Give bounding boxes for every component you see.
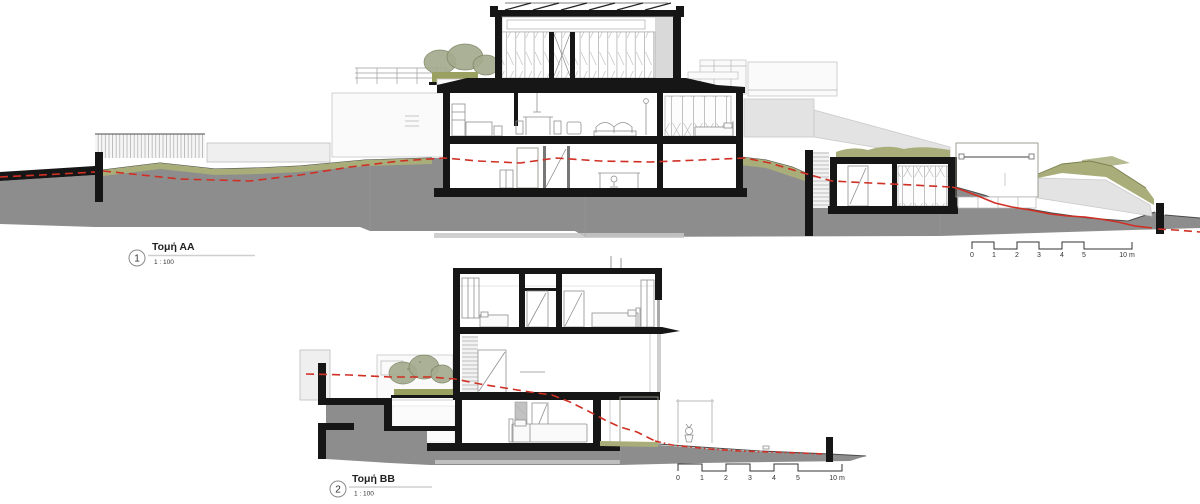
roof-slab <box>453 268 662 274</box>
roof-vents <box>611 256 621 268</box>
folding-shutters <box>502 32 655 78</box>
view-label-bb: 2 Τομή ΒΒ 1 : 100 <box>330 473 432 498</box>
section-bb-drawing: 0 1 2 3 4 5 10 m 2 Τομή ΒΒ 1 : 100 <box>300 256 866 498</box>
scalebar-tick: 3 <box>1037 252 1041 259</box>
house-bb <box>427 256 680 451</box>
view-number: 2 <box>335 485 341 496</box>
right-parapet <box>688 72 738 79</box>
upper-solid-panel <box>655 17 673 78</box>
pergola-posts <box>676 399 714 443</box>
scalebar-tick: 4 <box>1060 252 1064 259</box>
annex-volume <box>332 93 444 157</box>
view-title: Τομή ΑΑ <box>152 241 195 253</box>
view-title: Τομή ΒΒ <box>352 473 395 485</box>
scalebar-tick: 2 <box>1015 252 1019 259</box>
view-scale: 1 : 100 <box>154 259 174 266</box>
scalebar-tick: 1 <box>992 252 996 259</box>
green-roof <box>836 147 950 158</box>
clerestory-band <box>502 17 673 32</box>
scalebar-tick: 0 <box>676 475 680 482</box>
view-number: 1 <box>134 254 140 265</box>
terrace-canopy <box>748 62 837 96</box>
stone-wall-aa <box>956 143 1038 208</box>
upper-floor-slab <box>437 78 745 93</box>
base-slab-bb <box>427 443 620 451</box>
scalebar-tick: 1 <box>700 475 704 482</box>
background-volume <box>207 143 330 162</box>
scalebar-tick: 2 <box>724 475 728 482</box>
left-wall <box>453 268 460 400</box>
scalebar-tick: 5 <box>1082 252 1086 259</box>
sections-canvas: 0 1 2 3 4 5 10 m 1 Τομή ΑΑ 1 : 100 <box>0 0 1200 504</box>
scale-bar-bb: 0 1 2 3 4 5 10 m <box>676 464 845 482</box>
roof-slats <box>505 3 671 10</box>
scalebar-end-label: 10 m <box>829 475 845 482</box>
base-slab <box>434 188 747 197</box>
boundary-post-bb <box>826 437 833 462</box>
view-label-aa: 1 Τομή ΑΑ 1 : 100 <box>129 241 255 266</box>
main-house-aa <box>434 3 747 197</box>
background-mass <box>744 99 814 137</box>
section-aa-drawing: 0 1 2 3 4 5 10 m 1 Τομή ΑΑ 1 : 100 <box>0 3 1200 266</box>
garden-objects-bb <box>685 424 769 449</box>
fence-hatch <box>95 134 205 158</box>
drawing-sheet: 0 1 2 3 4 5 10 m 1 Τομή ΑΑ 1 : 100 <box>0 0 1200 504</box>
scalebar-end-label: 10 m <box>1119 252 1135 259</box>
scale-bar-aa: 0 1 2 3 4 5 10 m <box>970 242 1135 259</box>
scalebar-tick: 4 <box>772 475 776 482</box>
scalebar-tick: 3 <box>748 475 752 482</box>
view-scale: 1 : 100 <box>354 491 374 498</box>
scalebar-tick: 0 <box>970 252 974 259</box>
scalebar-tick: 5 <box>796 475 800 482</box>
